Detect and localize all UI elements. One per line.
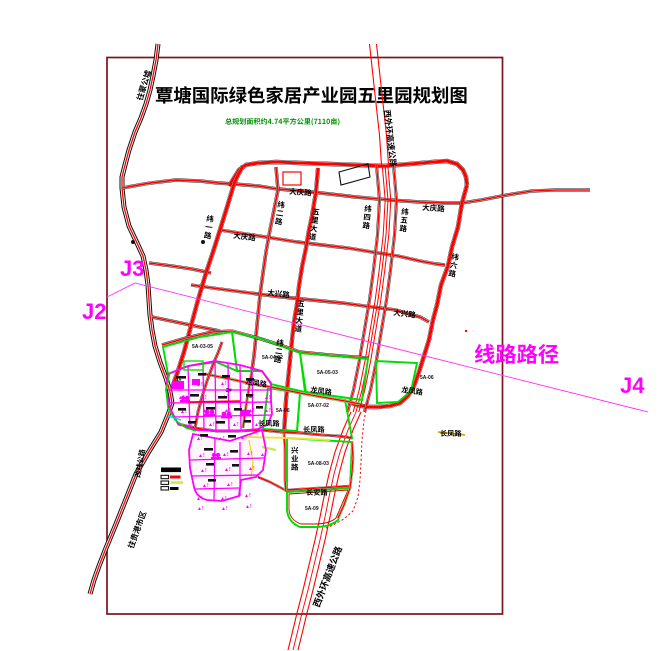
svg-text:5A-07-02: 5A-07-02 [308,403,329,409]
svg-text:▲!: ▲! [226,482,233,488]
svg-text:▲!: ▲! [246,380,253,386]
svg-text:▲!: ▲! [200,468,207,474]
svg-text:▲!: ▲! [176,382,183,388]
svg-text:▲!: ▲! [202,483,209,489]
svg-text:▲!: ▲! [196,436,203,442]
svg-text:▲!: ▲! [264,395,271,401]
svg-text:▲!: ▲! [224,408,231,414]
svg-text:5A-05-03: 5A-05-03 [317,370,338,376]
svg-text:▲!: ▲! [246,451,253,457]
svg-text:5A-09: 5A-09 [305,506,319,512]
svg-text:J2: J2 [82,299,106,324]
svg-text:5A-03-05: 5A-03-05 [192,344,213,350]
svg-text:▲!: ▲! [240,435,247,441]
svg-text:▲!: ▲! [200,395,207,401]
svg-text:▲!: ▲! [264,408,271,414]
svg-text:▲!: ▲! [245,504,252,510]
svg-text:▲!: ▲! [178,395,185,401]
svg-text:▲!: ▲! [248,408,255,414]
svg-text:▲!: ▲! [186,423,193,429]
svg-text:▲!: ▲! [260,452,267,458]
svg-text:▲!: ▲! [224,467,231,473]
svg-text:▲!: ▲! [244,493,251,499]
svg-text:5A-04-02: 5A-04-02 [262,355,283,361]
svg-text:▲!: ▲! [258,382,265,388]
svg-text:▲!: ▲! [196,382,203,388]
svg-text:▲!: ▲! [254,422,261,428]
svg-text:▲!: ▲! [208,422,215,428]
svg-text:▲!: ▲! [232,422,239,428]
svg-text:▲!: ▲! [221,506,228,512]
svg-text:J3: J3 [120,256,144,281]
svg-text:▲!: ▲! [222,452,229,458]
svg-text:J4: J4 [620,373,645,398]
svg-text:▲!: ▲! [196,496,203,502]
svg-text:▲!: ▲! [248,466,255,472]
svg-text:▲!: ▲! [218,436,225,442]
svg-text:▲!: ▲! [220,496,227,502]
svg-text:5A-06: 5A-06 [420,375,434,381]
svg-text:5A-08-03: 5A-08-03 [308,461,329,467]
svg-text:5A-06: 5A-06 [276,408,290,414]
svg-text:▲!: ▲! [220,381,227,387]
svg-text:▲!: ▲! [198,453,205,459]
svg-text:▲!: ▲! [197,506,204,512]
